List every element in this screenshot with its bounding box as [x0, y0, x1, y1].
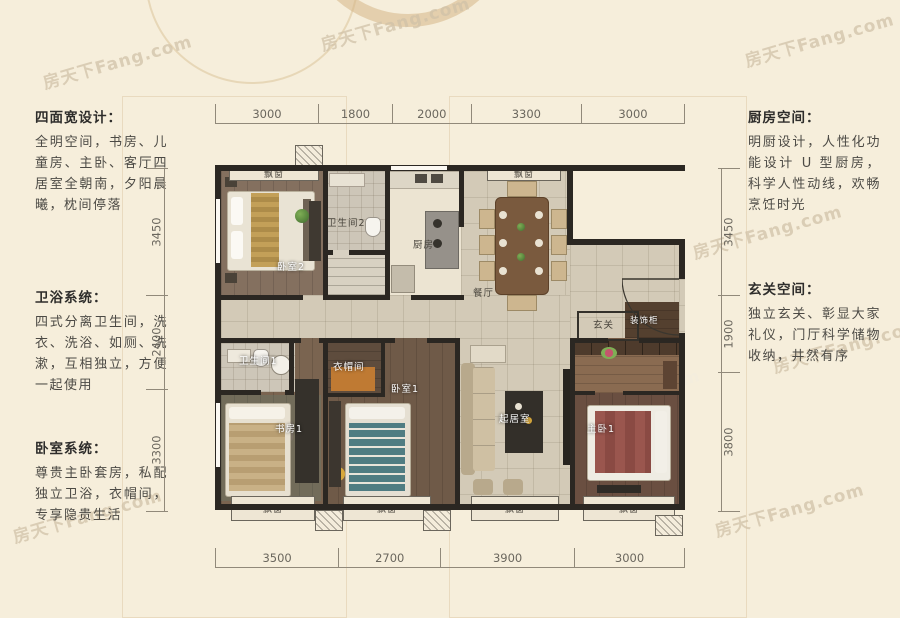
plant-icon: [295, 209, 309, 223]
table-plant-icon: [517, 253, 525, 261]
floorplan-page: { "watermark": "房天下Fang.com", "left_pane…: [0, 0, 900, 600]
window-strip: [391, 166, 447, 170]
window-strip: [216, 403, 220, 467]
dining-chair: [551, 235, 567, 255]
dimension-segment: 3450: [146, 168, 168, 295]
bedroom1-blanket: [349, 423, 405, 491]
watermark-text: 房天下Fang.com: [742, 5, 897, 72]
panel-foyer-space: 玄关空间： 独立玄关、彰显大家礼仪，门厅科学储物收纳，井然有序: [748, 278, 881, 367]
dimension-value: 3300: [150, 436, 164, 465]
table-plate-icon: [499, 211, 507, 219]
dining-chair: [479, 235, 495, 255]
panel-title: 厨房空间：: [748, 106, 881, 126]
dimension-value: 3450: [150, 218, 164, 247]
room-label-dining: 餐厅: [473, 285, 494, 299]
flowers-icon: [601, 347, 617, 359]
panel-kitchen-space: 厨房空间： 明厨设计，人性化功能设计 U 型厨房，科学人性动线，欢畅烹饪时光: [748, 106, 881, 216]
dimension-value: 2400: [150, 328, 164, 357]
floor-laundry: [325, 250, 387, 295]
dimension-segment: 3800: [718, 372, 740, 511]
ac-unit: [655, 515, 683, 536]
living-sofa-seat: [473, 367, 495, 471]
dimension-segment: 2700: [338, 548, 440, 568]
table-plate-icon: [535, 239, 543, 247]
dimension-value: 1800: [341, 107, 370, 123]
bedroom2-nightstand: [225, 273, 237, 283]
kitchen-sink: [431, 174, 443, 183]
bathroom2-vanity: [329, 173, 365, 187]
bedroom1-wardrobe: [329, 401, 341, 487]
dining-chair: [479, 209, 495, 229]
table-plate-icon: [535, 211, 543, 219]
dimension-segment: 3900: [440, 548, 574, 568]
room-label-bedroom2: 卧室2: [277, 259, 305, 273]
living-cabinet: [470, 345, 506, 363]
dimension-bottom: 3500270039003000: [215, 548, 685, 568]
master-closet-cabinet: [575, 341, 679, 355]
stove-burner-icon: [433, 239, 442, 248]
dimension-top: 30001800200033003000: [215, 104, 685, 124]
dimension-segment: 3000: [215, 104, 318, 124]
bedroom2-pillow: [231, 231, 243, 259]
living-armchair: [503, 479, 523, 495]
master-dresser: [663, 361, 677, 389]
dimension-segment: 3500: [215, 548, 338, 568]
room-label-study: 书房1: [275, 421, 303, 435]
dimension-left: 345024003300: [146, 168, 168, 512]
dimension-segment: 2400: [146, 295, 168, 388]
dimension-value: 3900: [493, 551, 522, 567]
study-pillow: [229, 407, 285, 419]
dimension-value: 2000: [417, 107, 446, 123]
room-label-kitchen: 厨房: [413, 237, 434, 251]
bedroom2-blanket: [251, 193, 279, 267]
dimension-segment: 1900: [718, 295, 740, 372]
panel-body: 独立玄关、彰显大家礼仪，门厅科学储物收纳，井然有序: [748, 304, 881, 367]
room-label-bathroom2: 卫生间2: [327, 215, 366, 229]
panel-body: 明厨设计，人性化功能设计 U 型厨房，科学人性动线，欢畅烹饪时光: [748, 132, 881, 216]
dimension-value: 3000: [252, 107, 281, 123]
room-label-deco-cabinet: 装饰柜: [630, 314, 659, 326]
dimension-segment: 3000: [581, 104, 684, 124]
bedroom2-pillow: [231, 197, 243, 225]
dining-chair: [507, 295, 537, 311]
master-pillow: [655, 411, 667, 473]
table-plant-icon: [517, 223, 525, 231]
ac-unit: [295, 145, 323, 166]
dining-chair: [507, 181, 537, 197]
living-armchair: [473, 479, 493, 495]
dimension-segment: 1800: [318, 104, 392, 124]
dimension-tick: [146, 511, 168, 512]
floorplan: 飘窗 飘窗 飘窗 飘窗 飘窗 飘窗: [215, 165, 685, 510]
dining-chair: [551, 261, 567, 281]
stove-burner-icon: [433, 219, 442, 228]
bathroom2-toilet: [365, 217, 381, 237]
dimension-value: 3800: [722, 427, 736, 456]
table-plate-icon: [499, 267, 507, 275]
entry-door-swing: [622, 277, 680, 337]
dimension-tick: [718, 511, 740, 512]
dimension-tick: [684, 104, 685, 124]
room-label-living: 起居室: [499, 411, 531, 425]
panel-title: 四面宽设计：: [35, 106, 168, 126]
dimension-segment: 3450: [718, 168, 740, 295]
kitchen-fridge: [391, 265, 415, 293]
watermark-text: 房天下Fang.com: [40, 27, 195, 94]
dimension-value: 3500: [262, 551, 291, 567]
dimension-right: 345019003800: [718, 168, 740, 512]
dimension-value: 1900: [722, 320, 736, 349]
dimension-value: 3000: [615, 551, 644, 567]
dimension-value: 3450: [722, 218, 736, 247]
room-label-master: 主卧1: [587, 421, 615, 435]
bedroom1-pillow: [349, 407, 405, 419]
room-label-bedroom1: 卧室1: [391, 381, 419, 395]
table-plate-icon: [499, 239, 507, 247]
bedroom2-cabinet: [309, 201, 321, 261]
room-label-foyer: 玄关: [593, 317, 614, 331]
kitchen-sink: [415, 174, 427, 183]
master-bench: [597, 485, 641, 493]
ac-unit: [423, 510, 451, 531]
table-decor-icon: [515, 403, 522, 410]
dimension-value: 2700: [375, 551, 404, 567]
room-label-closet: 衣帽间: [333, 359, 365, 373]
table-plate-icon: [535, 267, 543, 275]
panel-title: 玄关空间：: [748, 278, 881, 298]
dimension-value: 3000: [618, 107, 647, 123]
room-label-bathroom1: 卫生间1: [239, 353, 278, 367]
dimension-segment: 3300: [146, 389, 168, 511]
dimension-value: 3300: [512, 107, 541, 123]
dimension-tick: [684, 548, 685, 568]
dining-chair: [479, 261, 495, 281]
window-strip: [216, 199, 220, 263]
dimension-segment: 3300: [471, 104, 581, 124]
dining-chair: [551, 209, 567, 229]
dimension-segment: 2000: [392, 104, 471, 124]
ac-unit: [315, 510, 343, 531]
dimension-segment: 3000: [574, 548, 684, 568]
